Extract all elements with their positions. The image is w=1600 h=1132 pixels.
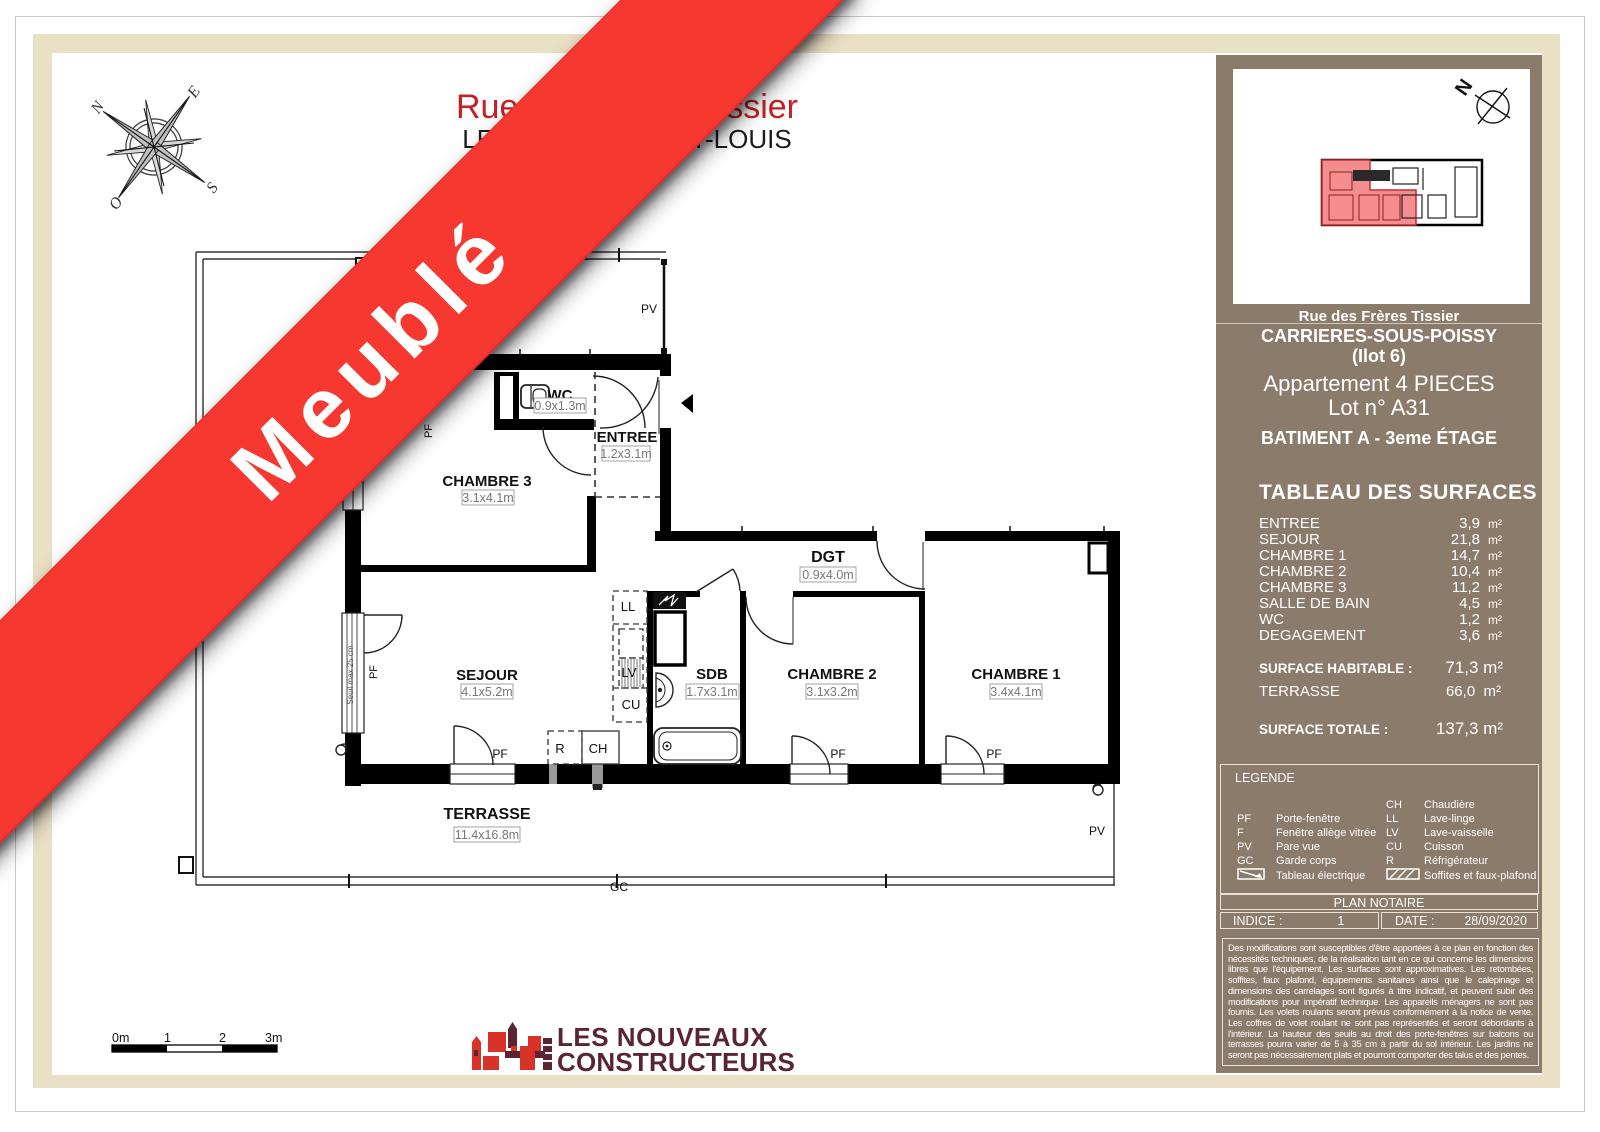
svg-text:S: S bbox=[203, 180, 222, 196]
svg-text:3.1x3.2m: 3.1x3.2m bbox=[806, 685, 857, 699]
svg-text:PF: PF bbox=[986, 747, 1001, 761]
svg-text:Seuil max 25 cm: Seuil max 25 cm bbox=[346, 645, 355, 704]
svg-text:CHAMBRE 3: CHAMBRE 3 bbox=[442, 473, 531, 490]
svg-text:CHAMBRE 2: CHAMBRE 2 bbox=[787, 666, 876, 683]
svg-text:PV: PV bbox=[1089, 824, 1105, 838]
svg-text:3.4x4.1m: 3.4x4.1m bbox=[990, 685, 1041, 699]
svg-text:3m: 3m bbox=[265, 1031, 282, 1045]
svg-text:0.9x1.3m: 0.9x1.3m bbox=[534, 399, 585, 413]
svg-text:N: N bbox=[1451, 75, 1477, 99]
svg-text:PV: PV bbox=[641, 302, 657, 316]
svg-text:LV: LV bbox=[622, 665, 637, 680]
svg-text:O: O bbox=[106, 194, 127, 214]
svg-text:0.9x4.0m: 0.9x4.0m bbox=[802, 568, 853, 582]
svg-text:4.1x5.2m: 4.1x5.2m bbox=[461, 685, 512, 699]
svg-text:TERRASSE: TERRASSE bbox=[443, 806, 530, 823]
svg-text:3.1x4.1m: 3.1x4.1m bbox=[462, 491, 513, 505]
svg-text:N: N bbox=[87, 97, 108, 117]
svg-text:PF: PF bbox=[368, 665, 380, 679]
svg-text:CH: CH bbox=[589, 741, 608, 756]
svg-text:1.7x3.1m: 1.7x3.1m bbox=[686, 685, 737, 699]
svg-text:R: R bbox=[555, 741, 564, 756]
svg-text:CU: CU bbox=[622, 697, 641, 712]
svg-text:0m: 0m bbox=[112, 1031, 129, 1045]
svg-text:LL: LL bbox=[621, 599, 635, 614]
svg-text:DGT: DGT bbox=[811, 549, 845, 566]
svg-text:PF: PF bbox=[423, 424, 435, 438]
svg-text:GC: GC bbox=[610, 880, 628, 894]
svg-text:SEJOUR: SEJOUR bbox=[456, 667, 518, 684]
svg-text:CHAMBRE 1: CHAMBRE 1 bbox=[971, 666, 1060, 683]
svg-text:1: 1 bbox=[164, 1031, 171, 1045]
svg-text:SDB: SDB bbox=[696, 666, 728, 683]
svg-text:2: 2 bbox=[219, 1031, 226, 1045]
svg-text:PF: PF bbox=[492, 747, 507, 761]
svg-text:ENTREE: ENTREE bbox=[597, 429, 658, 446]
svg-text:PF: PF bbox=[830, 747, 845, 761]
svg-text:11.4x16.8m: 11.4x16.8m bbox=[455, 828, 519, 842]
svg-text:1.2x3.1m: 1.2x3.1m bbox=[600, 447, 651, 461]
